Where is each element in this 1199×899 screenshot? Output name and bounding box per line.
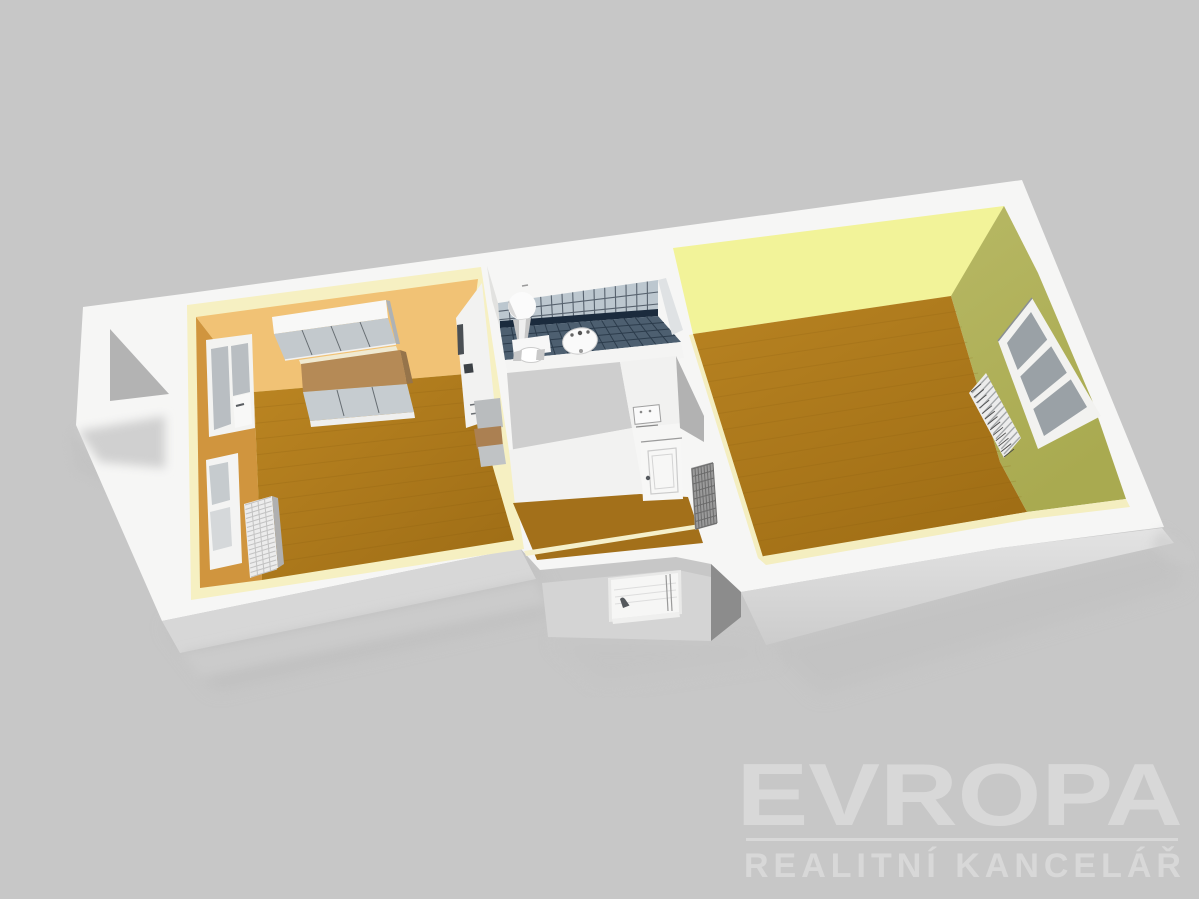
- svg-text:EVROPA: EVROPA: [737, 745, 1183, 843]
- svg-text:REALITNÍ KANCELÁŘ: REALITNÍ KANCELÁŘ: [744, 847, 1186, 885]
